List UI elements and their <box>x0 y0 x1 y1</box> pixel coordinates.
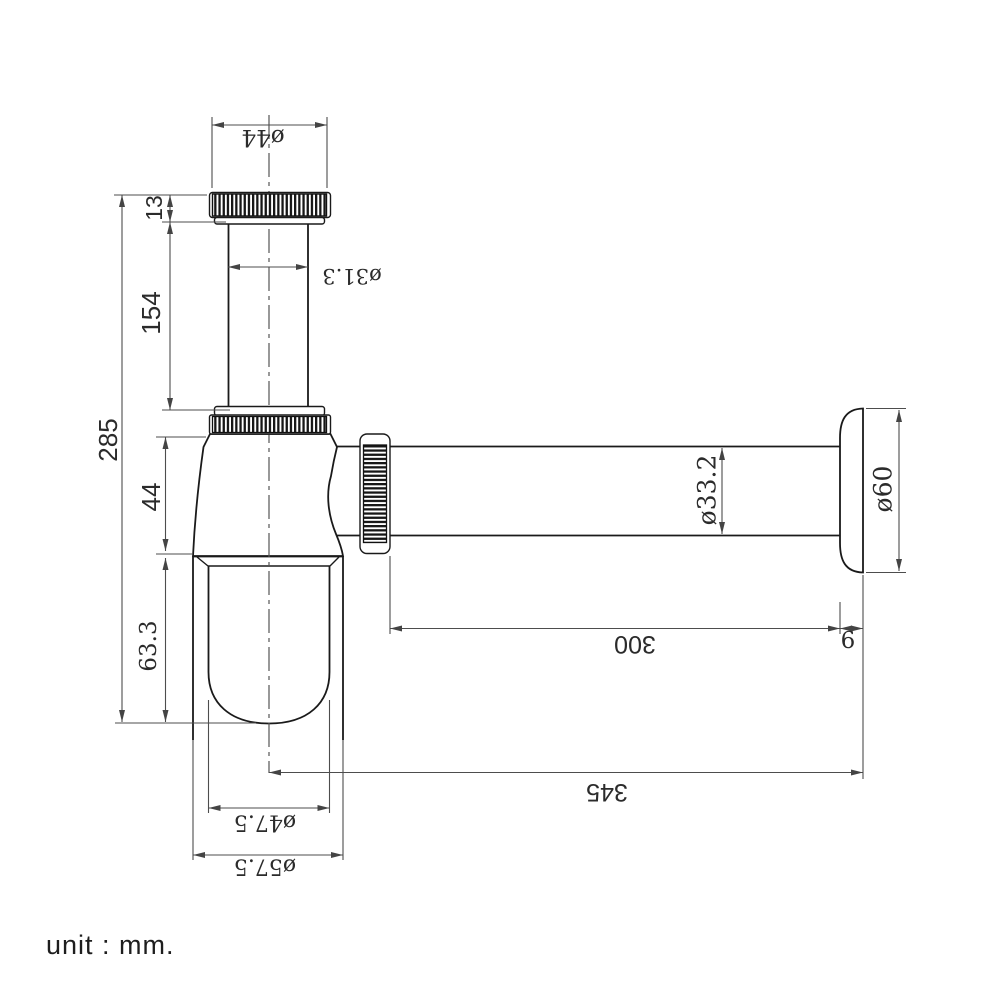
top-cap-lip <box>215 218 325 225</box>
unit-note: unit : mm. <box>46 930 175 961</box>
dim-label-cap-height: 13 <box>141 195 167 221</box>
trap-outline <box>193 221 863 740</box>
wall-flange <box>840 409 863 573</box>
dim-label-total-height: 285 <box>93 418 123 461</box>
dim-label-flange-diameter: ø60 <box>869 466 898 513</box>
dim-label-outlet-pipe-diameter: ø33.2 <box>693 455 722 526</box>
dim-label-inlet-tube-length: 154 <box>136 291 166 334</box>
dim-label-body-cone-height: 44 <box>136 483 166 512</box>
bottle-cup <box>193 556 343 740</box>
inlet-tube <box>229 221 309 409</box>
cup-outer-walls <box>193 556 343 740</box>
outlet-pipe <box>330 447 840 536</box>
top-cap-knurl <box>213 194 327 216</box>
dim-label-cup-outer-diameter: ø57.5 <box>234 854 296 879</box>
dim-label-outlet-pipe-length: 300 <box>614 630 656 658</box>
dim-label-cap-diameter: ø44 <box>241 124 284 150</box>
trap-body-cone <box>193 434 343 556</box>
outlet-pipe-nut <box>360 434 390 554</box>
top-cap-nut <box>210 193 331 225</box>
body-coupling-nut <box>210 407 331 435</box>
cup-rim-chamfer <box>197 557 339 566</box>
bottle-trap-diagram: ø4413154ø31.32854463.3ø33.2ø603006345ø47… <box>0 0 1000 1000</box>
technical-drawing-page: ø4413154ø31.32854463.3ø33.2ø603006345ø47… <box>0 0 1000 1000</box>
coupling-nut-knurl <box>213 417 327 433</box>
coupling-nut-lip <box>215 407 325 416</box>
dim-label-overall-length: 345 <box>586 778 628 806</box>
dim-label-cup-inner-diameter: ø47.5 <box>234 810 296 835</box>
dim-label-flange-thickness: 6 <box>841 628 856 654</box>
dim-label-cup-depth: 63.3 <box>136 620 162 671</box>
dim-label-inlet-tube-diameter: ø31.3 <box>322 264 381 288</box>
pipe-nut-knurl <box>364 445 387 543</box>
